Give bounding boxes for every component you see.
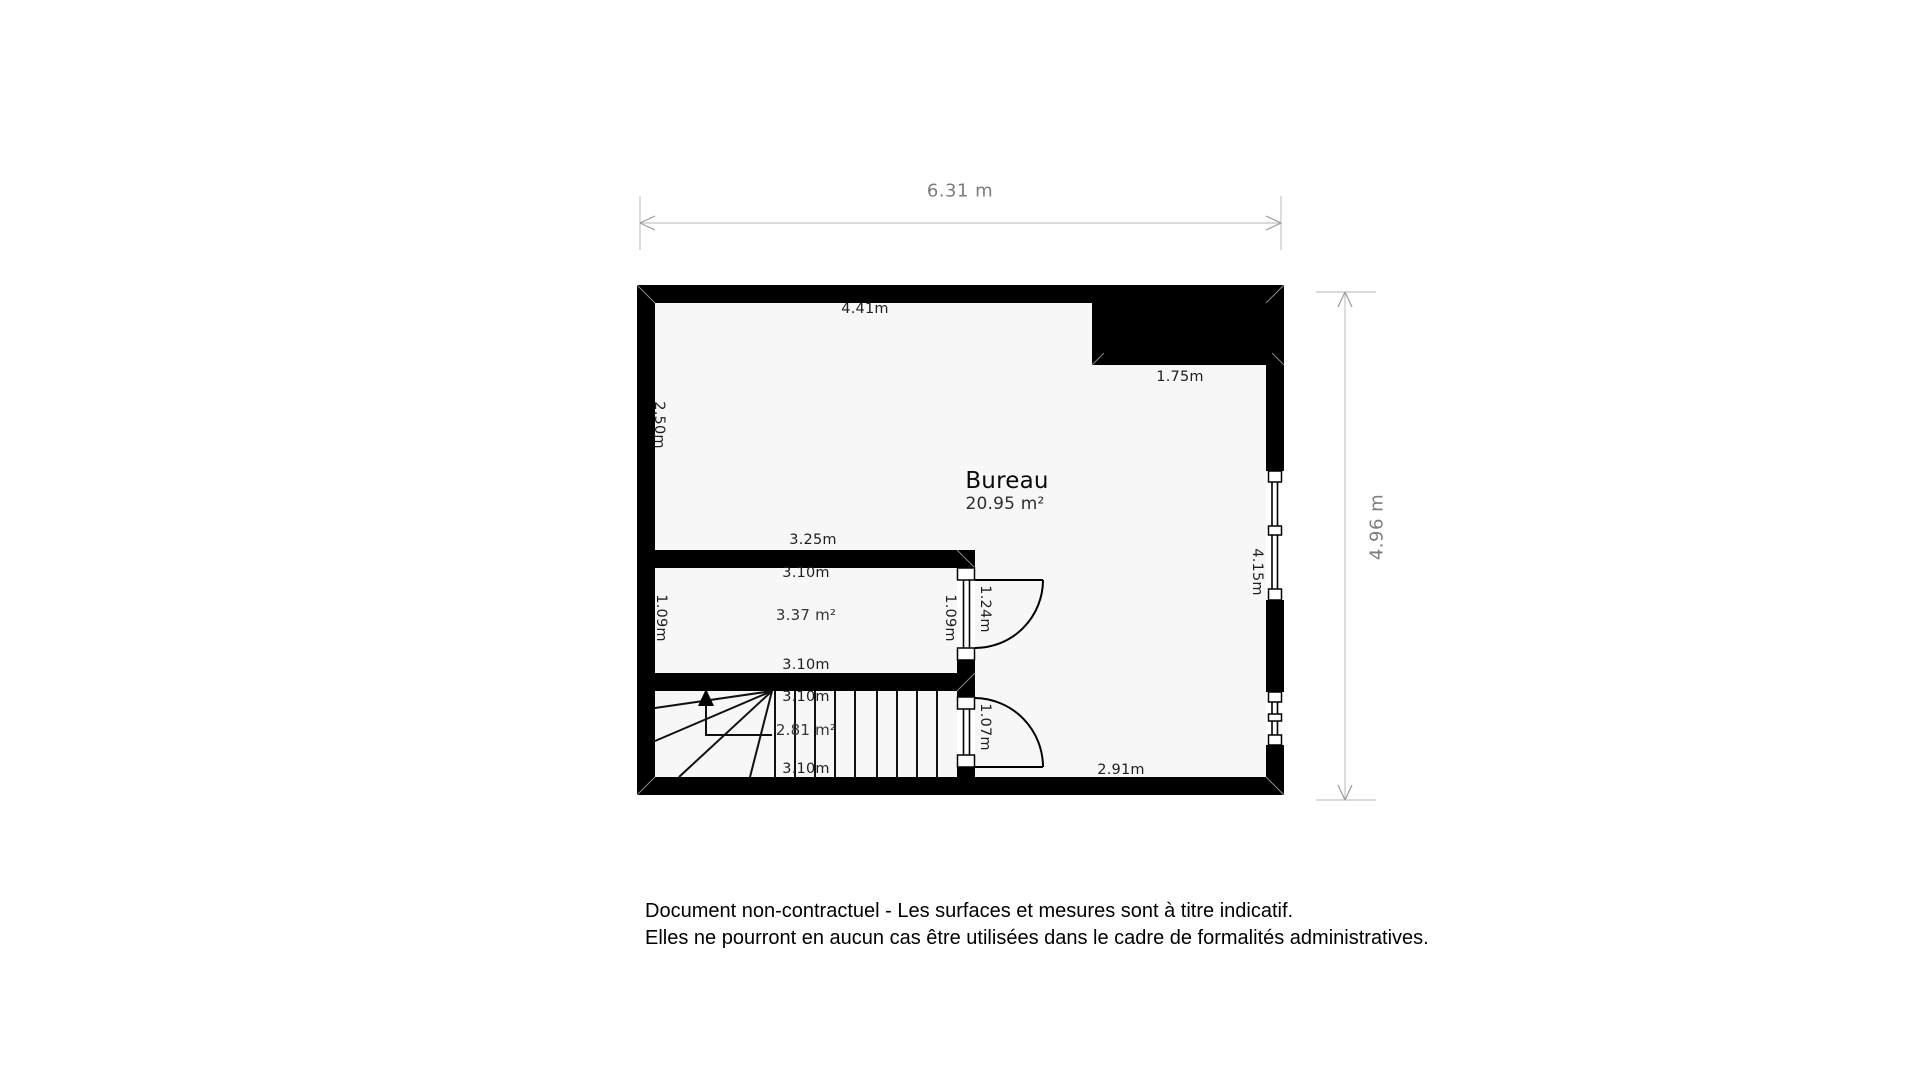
window-2 <box>1266 692 1284 745</box>
disclaimer: Document non-contractuel - Les surfaces … <box>645 898 1429 952</box>
dimension-line-top <box>640 196 1281 250</box>
closet-height-right: 1.09m <box>942 594 958 641</box>
top-wall-dimension: 4.41m <box>841 301 888 317</box>
wall-left <box>637 285 655 795</box>
overall-height-dimension: 4.96 m <box>1367 494 1388 560</box>
room-name-bureau: Bureau <box>965 468 1048 494</box>
overall-width-dimension: 6.31 m <box>927 181 993 202</box>
left-upper-dimension: 2.50m <box>651 401 667 448</box>
closet-area: 3.37 m² <box>776 606 836 624</box>
closet-width-bottom: 3.10m <box>782 657 829 673</box>
closet-width-top: 3.10m <box>782 565 829 581</box>
room-area-bureau: 20.95 m² <box>965 494 1044 514</box>
closet-height-left: 1.09m <box>653 594 669 641</box>
bottom-right-dimension: 2.91m <box>1097 762 1144 778</box>
niche-width-dimension: 1.75m <box>1156 369 1203 385</box>
stairs-width-bottom: 3.10m <box>782 761 829 777</box>
inner-width-dimension: 3.25m <box>789 532 836 548</box>
closet-door-dimension: 1.24m <box>977 585 993 632</box>
solid-niche <box>1092 285 1284 365</box>
right-wall-dimension: 4.15m <box>1249 548 1265 595</box>
disclaimer-line-2: Elles ne pourront en aucun cas être util… <box>645 925 1429 952</box>
disclaimer-line-1: Document non-contractuel - Les surfaces … <box>645 898 1429 925</box>
wall-bottom <box>637 777 1284 795</box>
floor-plan-page: 6.31 m 4.96 m 4.41m 1.75m 2.50m Bureau 2… <box>0 0 1920 1080</box>
stairs-width-top: 3.10m <box>782 689 829 705</box>
window-1 <box>1266 471 1284 600</box>
stairs-door-dimension: 1.07m <box>977 703 993 750</box>
stairs-area: 2.81 m² <box>776 721 836 739</box>
